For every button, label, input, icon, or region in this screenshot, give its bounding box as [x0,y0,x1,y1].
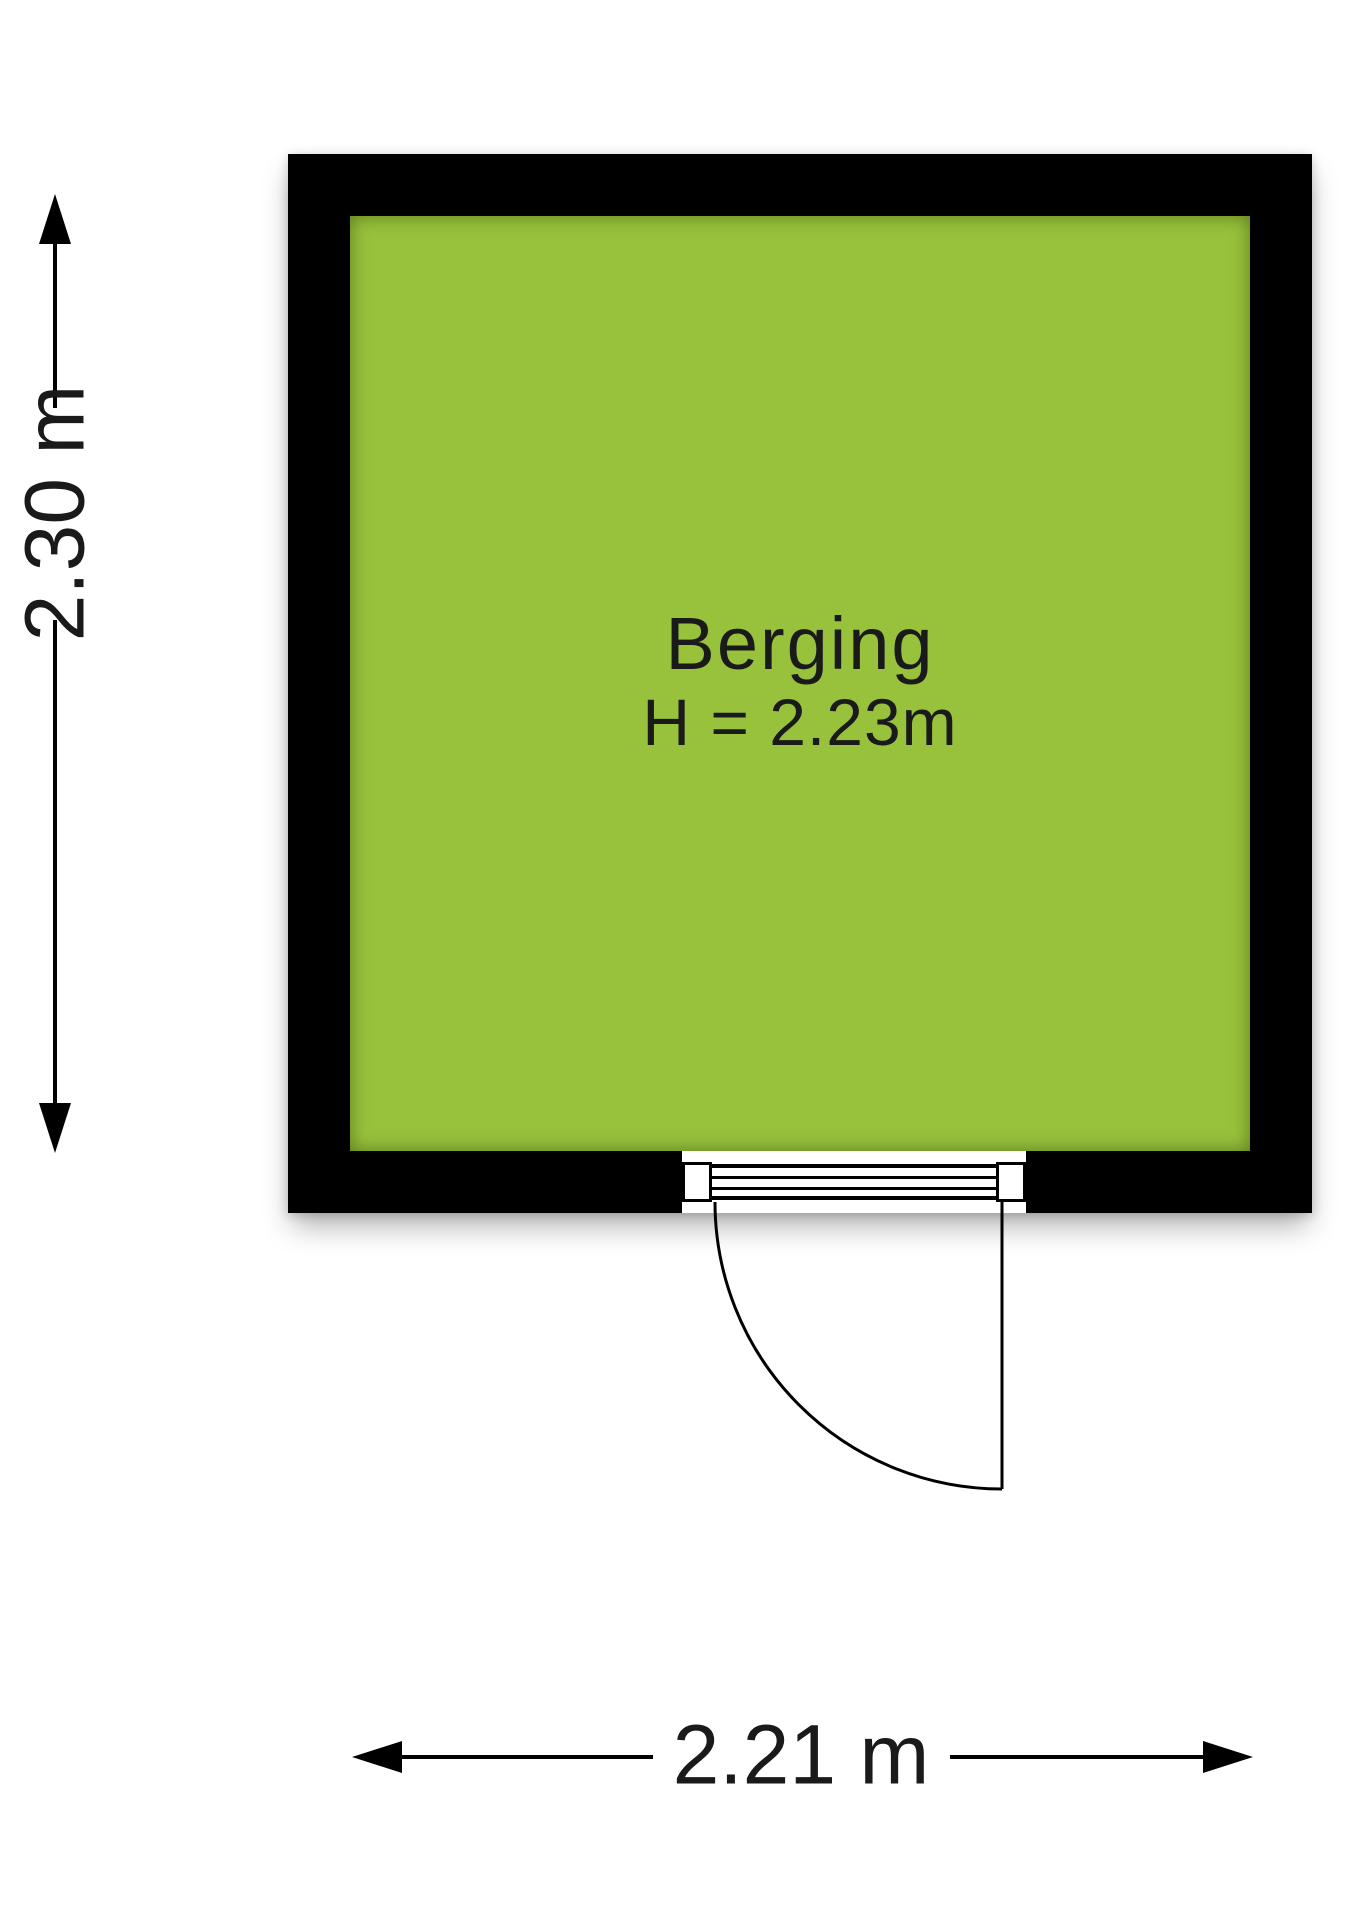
threshold-line [706,1176,1004,1179]
vertical-dimension-label: 2.30 m [7,385,104,642]
door-swing [670,1190,1040,1510]
vertical-dimension-line-top [53,238,57,408]
horizontal-dimension-line-right [950,1755,1208,1759]
vertical-dimension-line-bottom [53,620,57,1110]
arrow-left-icon [352,1741,402,1773]
room-height-label: H = 2.23m [642,683,957,762]
floorplan-canvas: 2.30 m Berging H = 2.23m 2.21 m [0,0,1358,1920]
room-name-label: Berging [665,605,934,683]
horizontal-dimension-label: 2.21 m [673,1707,930,1804]
arrow-down-icon [39,1103,71,1153]
horizontal-dimension-line-left [398,1755,653,1759]
arrow-right-icon [1203,1741,1253,1773]
door-arc [715,1202,1002,1489]
arrow-up-icon [39,194,71,244]
room-label-group: Berging H = 2.23m [350,216,1250,1151]
